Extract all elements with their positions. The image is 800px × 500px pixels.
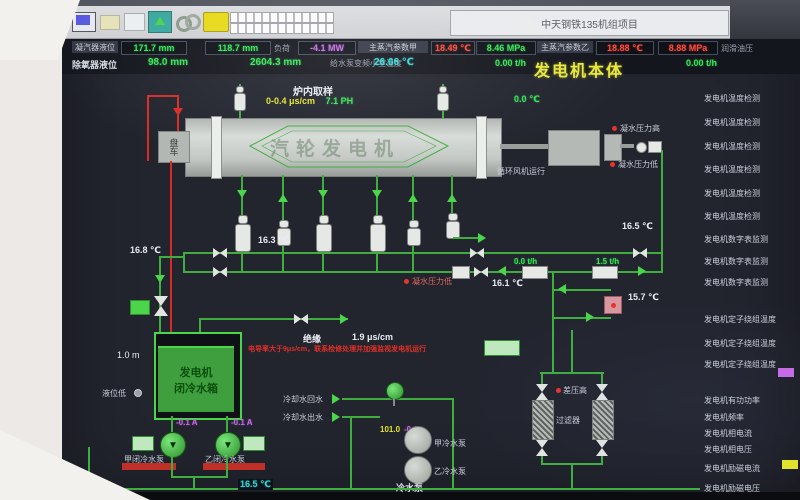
photo-of-monitor: 中天钢铁135机组项目 凝汽器液位 171.7 mm 118.7 mm 负荷 -…: [0, 0, 800, 500]
sampling-valve-icon[interactable]: [234, 93, 246, 111]
cw-out-label: 冷却水出水: [283, 412, 323, 423]
temp-bottom: 16.5 ℃: [238, 479, 273, 490]
flow-arrow-right: [332, 394, 340, 404]
sampling-ph: 7.1 PH: [326, 96, 354, 106]
fan-running-label: 循环风机运行: [497, 166, 545, 177]
status-value-steam-a-press[interactable]: 8.46 MPa: [476, 41, 536, 55]
pipe-hot: [170, 161, 172, 333]
trend-arrow-glyph: [155, 17, 165, 25]
flow-arrow-down: [318, 190, 328, 198]
valve-icon[interactable]: [373, 215, 383, 224]
window-title: 中天钢铁135机组项目: [541, 16, 638, 31]
exciter-box[interactable]: [548, 130, 600, 166]
monitor-screen-glyph: [76, 15, 90, 25]
list-item: 发电机数字表监测: [704, 277, 768, 288]
status-value-level-1[interactable]: 171.7 mm: [121, 41, 187, 55]
list-item: 发电机有功功率: [704, 395, 760, 406]
bezel-top-right: [730, 0, 800, 39]
list-item: 发电机温度检测: [704, 117, 760, 128]
cwp-a-label: 甲冷水泵: [434, 438, 466, 449]
flow-arrow-left: [498, 266, 506, 276]
hmi-screen: 中天钢铁135机组项目 凝汽器液位 171.7 mm 118.7 mm 负荷 -…: [62, 0, 800, 500]
shaft: [500, 144, 548, 149]
list-item: 发电机相电压: [704, 444, 752, 455]
pipe: [553, 317, 611, 319]
alarm-dot: [404, 279, 409, 284]
pipe: [171, 476, 228, 478]
filter-inlet-valve-icon[interactable]: [536, 384, 548, 400]
list-item: 发电机温度检测: [704, 164, 760, 175]
generator-end-band: [211, 116, 222, 179]
pipe: [199, 318, 201, 333]
alarm-dot: [610, 162, 615, 167]
list-item: 发电机数字表监测: [704, 234, 768, 245]
pipe: [200, 318, 348, 320]
tank-inlet-valve-icon[interactable]: [154, 296, 168, 316]
toolbar: 中天钢铁135机组项目: [62, 6, 730, 39]
pipe: [183, 252, 185, 273]
flow-arrow-down: [237, 190, 247, 198]
open-icon[interactable]: [100, 15, 120, 30]
pipe-valve-icon[interactable]: [294, 314, 308, 324]
alarm-dot: [556, 388, 561, 393]
flow-00-label: 0.0 t/h: [514, 257, 537, 266]
motor-valve-icon[interactable]: [386, 382, 404, 400]
right-panel: 发电机温度检测 发电机温度检测 发电机温度检测 发电机温度检测 发电机温度检测 …: [704, 84, 800, 492]
valve-icon[interactable]: [409, 220, 419, 228]
valve-icon[interactable]: [238, 215, 248, 224]
instrument-box: [452, 266, 470, 279]
list-item: 发电机定子绕组温度: [704, 359, 776, 370]
tank-top-band: [158, 336, 234, 348]
list-item: 发电机频率: [704, 412, 744, 423]
pump-a-current: -0.1 A: [176, 418, 198, 427]
pipe-valve-icon[interactable]: [474, 267, 488, 277]
pump-b-current: -0.1 A: [231, 418, 253, 427]
motor-valve-position: 101.0: [380, 425, 400, 434]
instrument-box: [648, 141, 662, 153]
list-item: 发电机相电流: [704, 428, 752, 439]
cw-return-label: 冷却水回水: [283, 394, 323, 405]
pipe-hot: [147, 95, 149, 161]
sampling-conductivity: 0-0.4 μs/cm: [266, 96, 315, 106]
conductivity-warning: 电导率大于9μs/cm，联系检修处理并加强监视发电机运行: [248, 344, 426, 354]
sampling-valve-icon[interactable]: [236, 86, 244, 93]
flow-arrow-right: [478, 233, 486, 243]
status-label-load: 负荷: [274, 43, 290, 54]
filter-outlet-valve-icon[interactable]: [536, 440, 548, 456]
status-bar: 凝汽器液位 171.7 mm 118.7 mm 负荷 -4.1 MW 主蒸汽参数…: [62, 39, 800, 74]
pipe: [159, 256, 161, 333]
window-title-box: 中天钢铁135机组项目: [450, 10, 729, 36]
cooling-water-pump-a[interactable]: [404, 426, 432, 454]
status-value-flow-2[interactable]: 0.00 t/h: [686, 58, 717, 68]
motor-valve-stem: [393, 398, 395, 406]
list-item: 发电机温度检测: [704, 93, 760, 104]
generator-label: 汽轮发电机: [270, 134, 400, 161]
status-value-deaerator-1[interactable]: 98.0 mm: [148, 57, 188, 68]
temp-top-value: 0.0 ℃: [514, 94, 540, 105]
status-label-main-steam-b: 主蒸汽参数乙: [537, 41, 593, 53]
flow-arrow-right: [340, 314, 348, 324]
pipe: [453, 237, 479, 239]
valve-status-box[interactable]: [130, 300, 150, 315]
flow-arrow-left: [558, 284, 566, 294]
heater-box[interactable]: [604, 296, 622, 314]
pipe: [342, 416, 380, 418]
status-label-lube-oil: 润滑油压: [721, 43, 753, 54]
level-low-dot: [134, 389, 142, 397]
flow-arrow-right: [638, 266, 646, 276]
status-value-steam-a-temp[interactable]: 18.49 ℃: [431, 41, 475, 55]
list-item: 发电机温度检测: [704, 211, 760, 222]
flow-arrow-up: [278, 194, 288, 202]
pipe-valve-icon[interactable]: [213, 267, 227, 277]
status-value-deaerator-2[interactable]: 2604.3 mm: [250, 57, 301, 68]
temp-165: 16.5 ℃: [622, 221, 653, 232]
monitor-icon[interactable]: [72, 12, 96, 32]
pipe: [350, 416, 352, 489]
pump-b-alarm-bar: [203, 463, 265, 470]
status-label-condenser-level: 凝汽器液位: [72, 41, 118, 53]
valve-icon[interactable]: [448, 213, 458, 221]
press-high-label: 凝水压力高: [620, 123, 660, 134]
flow-arrow-down: [173, 108, 183, 116]
pipe: [552, 273, 554, 373]
flow-arrow-up: [408, 194, 418, 202]
flow-arrow-down: [155, 275, 165, 283]
flow-arrow-right: [332, 412, 340, 422]
shaft: [620, 144, 634, 148]
pipe: [159, 256, 183, 258]
list-item: 发电机励磁电压: [704, 483, 760, 492]
filter-label: 过滤器: [556, 415, 580, 426]
turning-gear-label: 盘车: [168, 138, 181, 156]
status-value-level-2[interactable]: 118.7 mm: [205, 41, 271, 55]
generator-end-band: [476, 116, 487, 179]
bezel-bottom: [62, 492, 800, 500]
press-low2-label: 凝水压力低: [412, 276, 452, 287]
temp-157: 15.7 ℃: [628, 292, 659, 303]
toolbar-button-grid-row1[interactable]: [230, 12, 334, 23]
status-label-deaerator-level: 除氧器液位: [72, 58, 117, 71]
status-indicator-box[interactable]: [484, 340, 520, 356]
flow-arrow-up: [447, 194, 457, 202]
press-low-label: 凝水压力低: [618, 159, 658, 170]
page-title: 发电机本体: [534, 57, 624, 81]
valve-icon[interactable]: [370, 224, 386, 252]
page-icon[interactable]: [124, 13, 145, 31]
clipped-value-stub: [782, 460, 798, 469]
pipe-valve-icon[interactable]: [470, 248, 484, 258]
pipe: [661, 150, 663, 273]
pump-a-alarm-bar: [122, 463, 176, 470]
filter-inlet-valve-icon[interactable]: [596, 384, 608, 400]
tank-label-line1: 发电机: [180, 364, 213, 380]
temp-163: 16.3 ℃: [258, 235, 289, 246]
valve-icon[interactable]: [235, 224, 251, 252]
cooling-water-pump-b[interactable]: [404, 456, 432, 484]
sampling-valve-icon[interactable]: [439, 86, 447, 93]
pump-b-status-box[interactable]: [243, 436, 265, 451]
flow-meter-box[interactable]: [592, 266, 618, 279]
clipped-value-stub: [778, 368, 794, 377]
list-item: 发电机温度检测: [704, 188, 760, 199]
pipe: [171, 416, 173, 432]
list-item: 发电机数字表监测: [704, 256, 768, 267]
temp-161: 16.1 ℃: [492, 278, 523, 289]
filter-a-element[interactable]: [532, 400, 554, 440]
alarm-dot: [611, 303, 616, 308]
cwp-b-label: 乙冷水泵: [434, 466, 466, 477]
pipe-valve-icon[interactable]: [213, 248, 227, 258]
status-value-feedpump-room-temp[interactable]: 26.66 ℃: [374, 57, 414, 68]
flow-arrow-right: [586, 312, 594, 322]
trend-icon[interactable]: [148, 11, 172, 33]
valve-icon[interactable]: [279, 220, 289, 228]
status-value-steam-b-press[interactable]: 8.88 MPa: [658, 41, 718, 55]
status-label-main-steam-a: 主蒸汽参数甲: [358, 41, 428, 53]
pipe: [226, 416, 228, 432]
pipe-bottom-header: [88, 488, 700, 490]
status-value-steam-b-temp[interactable]: 18.88 ℃: [596, 41, 654, 55]
pipe: [540, 372, 604, 374]
toolbar-button-grid-row2[interactable]: [230, 23, 334, 34]
flow-15-label: 1.5 t/h: [596, 257, 619, 266]
pipe: [226, 456, 228, 477]
level-low-label: 液位低: [102, 388, 126, 399]
status-value-load[interactable]: -4.1 MW: [298, 41, 356, 55]
pipe-header-2: [183, 271, 663, 273]
instrument-circle: [636, 142, 647, 153]
temp-168: 16.8 ℃: [130, 245, 161, 256]
valve-icon[interactable]: [316, 224, 332, 252]
filter-outlet-valve-icon[interactable]: [596, 440, 608, 456]
pipe: [571, 330, 573, 373]
list-item: 发电机温度检测: [704, 141, 760, 152]
pump-a-status-box[interactable]: [132, 436, 154, 451]
filter-b-element[interactable]: [592, 400, 614, 440]
flow-meter-box[interactable]: [522, 266, 548, 279]
dp-high-label: 差压高: [563, 385, 587, 396]
pipe-header-1: [183, 252, 663, 254]
turning-gear-box[interactable]: 盘车: [158, 131, 190, 163]
note-icon[interactable]: [203, 12, 229, 32]
pipe-valve-icon[interactable]: [633, 248, 647, 258]
valve-icon[interactable]: [407, 228, 421, 246]
sampling-valve-icon[interactable]: [437, 93, 449, 111]
tank-level-value: 1.0 m: [117, 350, 140, 360]
status-value-flow-1[interactable]: 0.00 t/h: [495, 58, 526, 68]
list-item: 发电机定子绕组温度: [704, 338, 776, 349]
alarm-dot: [612, 126, 617, 131]
list-item: 发电机励磁电流: [704, 463, 760, 474]
pipe: [171, 456, 173, 477]
link-ring-2: [185, 14, 201, 30]
insulation-value: 1.9 μs/cm: [352, 332, 393, 342]
link-icon[interactable]: [176, 14, 196, 28]
tank-label-line2: 闭冷水箱: [174, 380, 218, 396]
pipe-hot: [147, 95, 179, 97]
closed-cooling-tank[interactable]: 发电机 闭冷水箱: [154, 332, 242, 420]
pipe: [571, 463, 573, 489]
flow-arrow-down: [372, 190, 382, 198]
valve-icon[interactable]: [319, 215, 329, 224]
list-item: 发电机定子绕组温度: [704, 314, 776, 325]
